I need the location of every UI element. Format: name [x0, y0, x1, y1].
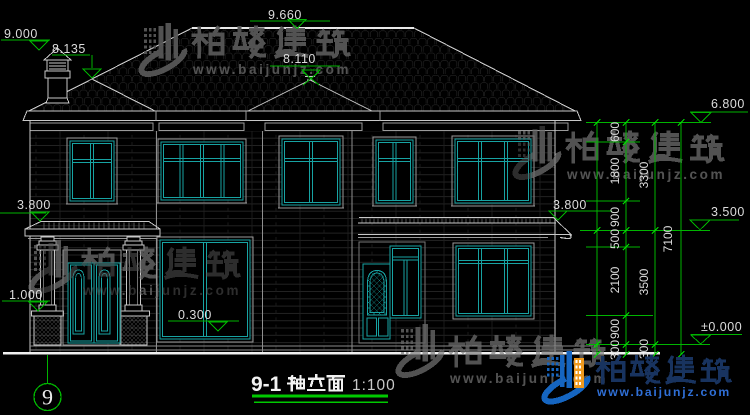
svg-text:8.110: 8.110	[283, 52, 316, 66]
svg-text:9.000: 9.000	[4, 27, 38, 41]
svg-text:3.800: 3.800	[17, 198, 51, 212]
svg-text:0.300: 0.300	[178, 308, 212, 322]
svg-text:600: 600	[608, 122, 622, 142]
svg-text:300: 300	[637, 339, 651, 359]
svg-text:900: 900	[608, 319, 622, 339]
svg-text:6.800: 6.800	[711, 97, 745, 111]
svg-text:3.800: 3.800	[553, 198, 587, 212]
svg-text:3.500: 3.500	[711, 205, 745, 219]
svg-text:www.baijunjz.com: www.baijunjz.com	[192, 62, 351, 77]
svg-text:7100: 7100	[661, 225, 675, 252]
svg-text:9-1: 9-1	[251, 373, 282, 396]
svg-text:www.baijunjz.com: www.baijunjz.com	[596, 385, 731, 399]
svg-text:±0.000: ±0.000	[701, 320, 742, 334]
svg-text:3300: 3300	[637, 161, 651, 188]
svg-text:900: 900	[608, 207, 622, 227]
svg-text:3500: 3500	[637, 268, 651, 295]
svg-text:1.000: 1.000	[9, 288, 43, 302]
svg-text:9: 9	[42, 385, 53, 410]
svg-text:2100: 2100	[608, 266, 622, 293]
svg-text:1:100: 1:100	[352, 377, 396, 394]
svg-text:1800: 1800	[608, 157, 622, 184]
svg-text:500: 500	[608, 229, 622, 249]
svg-text:8.135: 8.135	[52, 42, 86, 56]
svg-text:9.660: 9.660	[268, 8, 302, 22]
svg-text:www.baijunjz.com: www.baijunjz.com	[82, 283, 241, 298]
